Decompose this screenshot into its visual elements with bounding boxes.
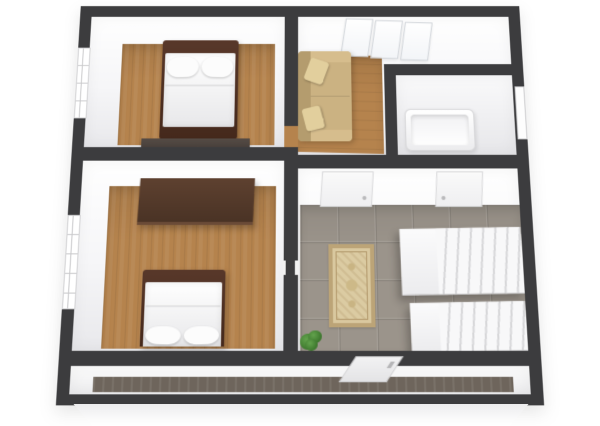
- wall-balcony-parapet: [56, 394, 544, 405]
- floor-plan-screenshot: [0, 0, 600, 426]
- room-balcony: [69, 366, 531, 394]
- model-plinth: [64, 404, 538, 426]
- wall-center-upper: [284, 6, 298, 126]
- window-pane-icon: [400, 22, 432, 61]
- double-bed-1: [159, 40, 239, 139]
- wardrobe: [137, 178, 255, 225]
- wall-mid-left: [71, 147, 298, 161]
- sofa: [298, 51, 352, 141]
- wall-center-lower: [283, 147, 298, 351]
- living-room-window: [343, 17, 436, 61]
- doorway-bedroom1-living: [284, 126, 298, 147]
- bathroom-door-icon: [515, 86, 528, 139]
- oriental-rug: [328, 244, 375, 327]
- room-hallway: [298, 168, 528, 350]
- staircase-lower-flight: [410, 301, 529, 353]
- balcony-deck-floor: [93, 377, 514, 392]
- wall-outer-top: [80, 6, 520, 17]
- wall-bathroom-left: [384, 64, 398, 155]
- hallway-door-right-icon: [435, 171, 483, 207]
- wall-rooms-bottom: [58, 351, 541, 366]
- floor-plan: [56, 6, 544, 405]
- room-bathroom: [396, 75, 517, 155]
- wall-mid-right: [284, 155, 529, 169]
- door-jamb-icon: [295, 261, 298, 275]
- window-pane-icon: [370, 20, 403, 59]
- staircase-upper-flight: [399, 227, 525, 296]
- wall-bathroom-top: [384, 64, 512, 75]
- double-bed-2: [140, 270, 226, 347]
- potted-plant-icon: [298, 329, 325, 353]
- hallway-door-left-icon: [320, 171, 374, 207]
- bathtub: [405, 109, 476, 151]
- low-dresser: [141, 138, 250, 147]
- door-jamb-icon: [283, 261, 286, 275]
- floor-plan-model: [56, 6, 544, 405]
